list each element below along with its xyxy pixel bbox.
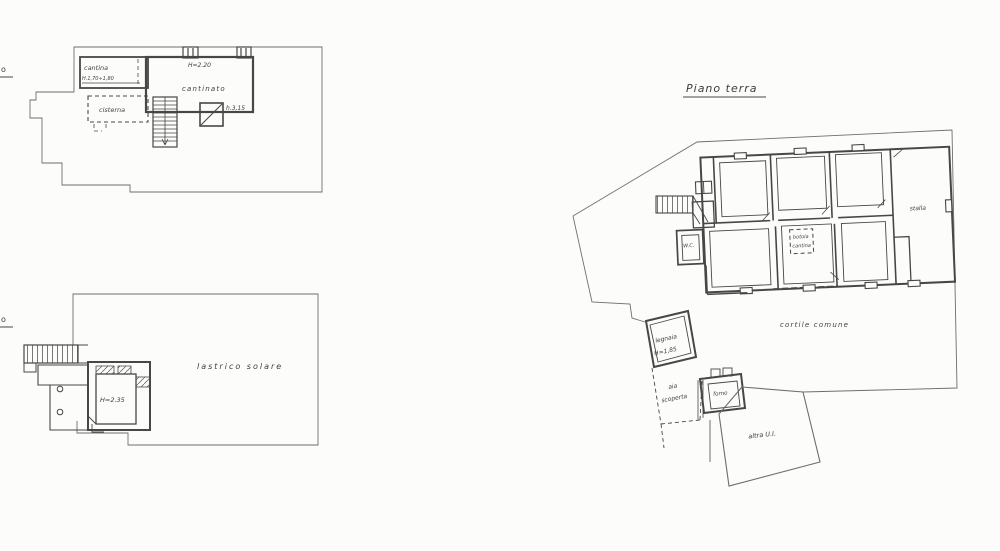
cisterna-feet-marks [94,124,106,131]
basement-property-boundary [30,47,322,192]
lightwell-diagonal [201,104,222,125]
basement-clipped-title: o [1,65,8,74]
ground-ext-stair [656,196,708,224]
forno: forno [700,368,745,413]
altra-ui: altra U.I. [710,387,820,486]
basement-plan: o cantina H.1,70÷1,80 cisterna [0,47,322,192]
cantinato-label: cantinato [182,85,226,93]
legnaia-label: legnaia [655,333,678,344]
cantina-height-label: H.1,70÷1,80 [82,76,114,82]
terrace-column-2 [57,409,63,415]
terrace-plan: o H=2.35 lastrico solare [0,294,318,445]
stalla-label: stalla [910,205,927,213]
building-outline [700,147,955,293]
terrace-room-height: H=2.35 [100,396,125,404]
forno-label: forno [713,390,729,397]
aia-label-2: scoperta [661,393,688,404]
botola-label-1: botola [793,234,809,241]
aia-scoperta: aia scoperta [652,368,703,448]
lightwell-height-label: h.3,15 [226,105,245,112]
botola-label-2: cantina [792,243,811,250]
floorplan-scan: o cantina H.1,70÷1,80 cisterna [0,0,1000,551]
altra-ui-label: altra U.I. [748,430,777,441]
terrace-roof-hatches [96,366,150,387]
botola-outline [790,229,814,254]
terrace-clipped-title: o [1,315,8,324]
terrace-ext-stair [24,345,88,372]
lastrico-label: lastrico solare [197,362,283,371]
cantinato-height-label: H=2.20 [188,62,211,69]
terrace-column-1 [57,386,63,392]
wc-label: W.C. [683,243,694,249]
ground-plan-title: Piano terra [686,82,758,95]
ground-plan: Piano terra [573,82,957,486]
aia-label-1: aia [668,382,678,391]
basement-staircase [153,97,177,147]
ground-building: botola cantina stalla W.C. [673,141,955,297]
cortile-label: cortile comune [780,321,849,329]
legnaia: legnaia H=1,85 [646,311,696,367]
terrace-west-wing [38,365,88,430]
floorplan-canvas: o cantina H.1,70÷1,80 cisterna [0,0,1000,551]
building-internal-walls [700,149,911,293]
cisterna-label: cisterna [99,106,125,114]
ground-property-boundary [573,130,957,392]
cantina-label: cantina [84,64,108,72]
legnaia-height-label: H=1,85 [654,346,678,358]
